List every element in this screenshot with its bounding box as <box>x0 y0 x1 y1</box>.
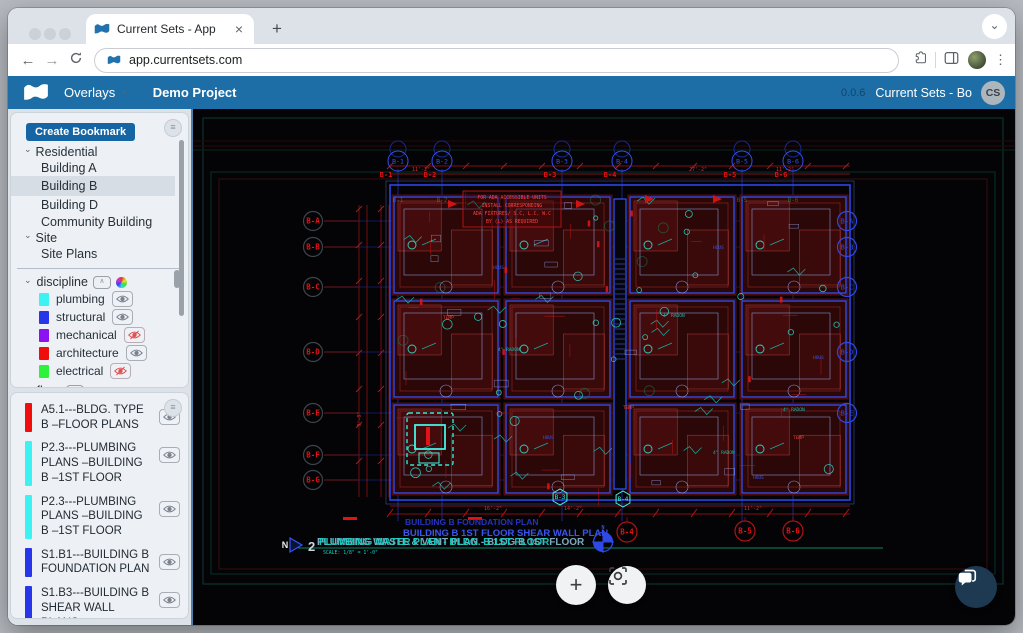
cad-text: B-A <box>841 218 854 226</box>
cad-text: B-C <box>841 284 854 292</box>
user-avatar[interactable]: CS <box>981 81 1005 105</box>
discipline-item-label: electrical <box>56 364 103 378</box>
visibility-eye-off-icon[interactable] <box>110 363 131 379</box>
cad-text: BUILDING B FOUNDATION PLAN <box>405 517 538 527</box>
browser-menu-kebab-icon[interactable]: ⋮ <box>994 52 1007 68</box>
sheet-row[interactable]: P2.3---PLUMBING PLANS –BUILDING B –1ST F… <box>25 441 180 485</box>
tree-label: Building D <box>41 198 98 212</box>
cad-text: B-4 <box>616 158 628 166</box>
sheet-color-bar <box>25 441 32 485</box>
visibility-eye-icon[interactable] <box>159 447 180 463</box>
scrollbar-thumb[interactable] <box>179 140 184 316</box>
cad-text: TEMP <box>443 315 454 321</box>
sidebar-item-community-building[interactable]: Community Building <box>11 213 188 230</box>
tab-search-chevron-icon[interactable]: ⌄ <box>982 14 1007 39</box>
discipline-header[interactable]: ⌄ discipline ∧ <box>11 274 188 290</box>
currentsets-favicon <box>94 23 110 35</box>
discipline-label: discipline <box>37 275 88 289</box>
chevron-down-icon: ⌄ <box>24 275 32 286</box>
cad-text: B-3 <box>544 171 557 179</box>
cad-text: B-E <box>306 409 320 418</box>
overlays-label: Overlays <box>64 85 115 100</box>
cad-text: BY (L) AS REQUIRED <box>486 219 538 225</box>
url-bar[interactable]: app.currentsets.com <box>94 48 899 73</box>
sheet-label: S1.B1---BUILDING B FOUNDATION PLAN <box>41 548 150 577</box>
sidebar-group-residential[interactable]: ⌄ Residential <box>11 144 188 159</box>
traffic-light-zoom-icon[interactable] <box>59 28 71 40</box>
discipline-item-plumbing[interactable]: plumbing <box>11 290 188 308</box>
discipline-item-structural[interactable]: structural <box>11 308 188 326</box>
cad-text: TEMP <box>623 405 634 411</box>
panel-handle-icon[interactable]: ≡ <box>164 119 182 137</box>
cad-text: B-6 <box>788 197 799 204</box>
tab-title: Current Sets - App <box>117 22 232 36</box>
discipline-item-mechanical[interactable]: mechanical <box>11 326 188 344</box>
cad-text: B-B <box>306 243 320 252</box>
cad-text: HOUS <box>813 355 824 361</box>
cad-text: B-D <box>841 349 854 357</box>
browser-window: Current Sets - App × + ⌄ ← → app.current… <box>8 8 1015 625</box>
browser-profile-avatar[interactable] <box>968 51 986 69</box>
tree-label: Residential <box>36 145 98 159</box>
currentsets-logo-icon[interactable] <box>22 83 50 102</box>
cad-text: B-E <box>841 410 854 418</box>
cad-text: B-1 <box>392 158 404 166</box>
color-swatch <box>39 311 49 324</box>
visibility-eye-icon[interactable] <box>159 592 180 608</box>
cad-text: B-A <box>306 217 320 226</box>
cad-text: B-D <box>306 348 320 357</box>
app-header: Overlays ⌄ Demo Project 0.0.6 Current Se… <box>8 76 1015 109</box>
url-text: app.currentsets.com <box>129 53 242 67</box>
cad-text: TEMP <box>793 435 804 441</box>
back-icon[interactable]: ← <box>16 52 40 69</box>
divider <box>17 268 182 269</box>
floor-label: floor <box>37 384 61 388</box>
cad-text: 11'-2" <box>744 506 762 512</box>
cad-text: B-5 <box>724 171 737 179</box>
add-button[interactable]: + <box>556 565 596 605</box>
sidebar-item-site-plans[interactable]: Site Plans <box>11 245 188 262</box>
sheet-row[interactable]: A5.1---BLDG. TYPE B –FLOOR PLANS <box>25 403 180 432</box>
center-focus-icon <box>608 566 628 586</box>
tree-label: Building A <box>41 161 97 175</box>
cad-text: B-4 <box>618 496 629 503</box>
discipline-item-label: architecture <box>56 346 119 360</box>
sheet-color-bar <box>25 586 32 619</box>
cad-text: HOUS <box>713 245 724 251</box>
cad-text: B-G <box>306 476 320 485</box>
visibility-eye-off-icon[interactable] <box>124 327 145 343</box>
sidebar-item-building-b[interactable]: Building B <box>11 176 175 196</box>
cad-text: HOUS <box>543 435 554 441</box>
color-swatch <box>39 365 49 378</box>
color-wheel-icon[interactable] <box>116 277 127 288</box>
chevron-down-icon: ⌄ <box>120 85 128 96</box>
cad-text: 4" RADON <box>783 407 805 413</box>
cad-text: 27'-2" <box>689 167 707 173</box>
visibility-eye-icon[interactable] <box>159 501 180 517</box>
cad-text: SCALE: 1/8" = 1'-0" <box>323 550 378 556</box>
project-name[interactable]: Demo Project <box>153 85 237 100</box>
sheet-label: S1.B3---BUILDING B SHEAR WALL PLANS <box>41 586 150 619</box>
currentsets-favicon <box>107 55 121 65</box>
cad-text: HOUS <box>753 475 764 481</box>
discipline-item-electrical[interactable]: electrical <box>11 362 188 380</box>
create-bookmark-button[interactable]: Create Bookmark <box>26 123 135 141</box>
cad-text: FOR ADA ACCESSIBLE UNITS <box>477 195 546 201</box>
sheet-color-bar <box>25 403 32 432</box>
cad-text: N <box>601 525 604 531</box>
cad-text: B-6 <box>787 158 799 166</box>
visibility-eye-icon[interactable] <box>126 345 147 361</box>
cad-text: B-5 <box>738 527 752 536</box>
sidebar: ≡ Create Bookmark ⌄ Residential Building… <box>8 109 193 625</box>
extensions-icon[interactable] <box>909 50 931 70</box>
chat-bubble-icon <box>955 566 979 590</box>
cad-text: B-3 <box>555 494 566 501</box>
cad-text: 4" RADON <box>663 313 685 319</box>
sheet-row[interactable]: S1.B3---BUILDING B SHEAR WALL PLANS <box>25 586 180 619</box>
sheet-row[interactable]: S1.B1---BUILDING B FOUNDATION PLAN <box>25 548 180 577</box>
cad-text: B-4 <box>620 528 634 537</box>
cad-text: 14'-2" <box>564 506 582 512</box>
cad-text: B-5 <box>736 158 748 166</box>
chevron-down-icon: ⌄ <box>24 144 32 155</box>
cad-text: B-4 <box>604 171 617 179</box>
color-swatch <box>39 347 49 360</box>
cad-text: B-5 <box>737 197 748 204</box>
cad-text: B-B <box>841 244 854 252</box>
sheet-label: A5.1---BLDG. TYPE B –FLOOR PLANS <box>41 403 150 432</box>
visibility-eye-icon[interactable] <box>112 291 133 307</box>
traffic-light-close-icon[interactable] <box>29 28 41 40</box>
tree-label: Site Plans <box>41 247 97 261</box>
tree-label: Site <box>36 231 58 245</box>
tab-close-icon[interactable]: × <box>232 21 246 37</box>
sidebar-item-building-a[interactable]: Building A <box>11 159 188 176</box>
cad-text: B-F <box>306 451 320 460</box>
sheet-label: P2.3---PLUMBING PLANS –BUILDING B –1ST F… <box>41 441 150 485</box>
traffic-light-minimize-icon[interactable] <box>44 28 56 40</box>
forward-icon[interactable]: → <box>40 52 64 69</box>
cad-text: 16'-2" <box>484 506 502 512</box>
cad-text: 4" RADON <box>713 450 735 456</box>
sheet-label: P2.3---PLUMBING PLANS –BUILDING B –1ST F… <box>41 495 150 539</box>
scan-focus-button[interactable] <box>608 566 646 604</box>
cad-text: B-2 <box>436 158 448 166</box>
chevron-down-icon: ⌄ <box>24 384 32 389</box>
panel-handle-icon[interactable]: ≡ <box>164 399 182 417</box>
side-panel-icon[interactable] <box>940 51 962 70</box>
sidebar-item-building-d[interactable]: Building D <box>11 196 188 213</box>
collapse-icon[interactable]: ∧ <box>66 385 84 389</box>
browser-toolbar: ← → app.currentsets.com ⋮ <box>8 44 1015 76</box>
bookmarks-panel: ≡ Create Bookmark ⌄ Residential Building… <box>10 112 189 388</box>
browser-tab[interactable]: Current Sets - App × <box>86 14 254 44</box>
sheets-panel: ≡ A5.1---BLDG. TYPE B –FLOOR PLANS P2.3-… <box>10 392 189 619</box>
discipline-item-label: plumbing <box>56 292 105 306</box>
cad-text: 11'-2" <box>412 167 430 173</box>
scrollbar-thumb[interactable] <box>174 270 180 288</box>
cad-text: B-3 <box>556 158 568 166</box>
cad-text: PLUMBING WATER PLAN - BLDG. B 1ST FLOOR <box>319 537 550 548</box>
collapse-icon[interactable]: ∧ <box>93 276 111 289</box>
visibility-eye-icon[interactable] <box>112 309 133 325</box>
tree-label: Community Building <box>41 215 152 229</box>
floor-header[interactable]: ⌄ floor ∧ <box>11 383 188 388</box>
cad-text: B-1 <box>393 197 404 204</box>
color-swatch <box>39 329 49 342</box>
cad-text: 4" RADON <box>498 347 520 353</box>
version-label: 0.0.6 <box>841 87 865 99</box>
cad-text: 9'-9" <box>357 411 363 426</box>
cad-text: HOUS <box>493 265 504 271</box>
visibility-eye-icon[interactable] <box>159 554 180 570</box>
cad-text: INSTALL CORRESPONDING <box>482 203 543 209</box>
account-name: Current Sets - Bo <box>875 86 972 100</box>
discipline-item-architecture[interactable]: architecture <box>11 344 188 362</box>
sheet-row[interactable]: P2.3---PLUMBING PLANS –BUILDING B –1ST F… <box>25 495 180 539</box>
cad-text: N <box>282 540 289 550</box>
sheet-color-bar <box>25 548 32 577</box>
cad-text: 2 <box>308 539 315 554</box>
reload-icon[interactable] <box>64 51 88 69</box>
color-swatch <box>39 293 49 306</box>
cad-text: B-1 <box>380 171 393 179</box>
sheet-color-bar <box>25 495 32 539</box>
tab-strip: Current Sets - App × + ⌄ <box>8 8 1015 44</box>
new-tab-button[interactable]: + <box>264 16 290 42</box>
overlays-menu[interactable]: Overlays ⌄ <box>64 85 129 100</box>
cad-text: B-6 <box>786 527 800 536</box>
chat-widget-button[interactable] <box>955 566 997 608</box>
tree-label: Building B <box>41 179 97 193</box>
cad-text: B-C <box>306 283 320 292</box>
cad-drawing[interactable]: B-1B-1B-1B-2B-2B-2B-3B-3B-4B-4B-5B-5B-5B… <box>193 109 1015 625</box>
cad-text: 11'-2" <box>776 167 794 173</box>
cad-text: B-2 <box>437 197 448 204</box>
toolbar-divider <box>935 52 936 68</box>
drawing-canvas[interactable]: B-1B-1B-1B-2B-2B-2B-3B-3B-4B-4B-5B-5B-5B… <box>193 109 1015 625</box>
discipline-item-label: mechanical <box>56 328 117 342</box>
chevron-down-icon: ⌄ <box>24 230 32 241</box>
cad-text: ADA FIXTURES/ S.C, L.C, W.C <box>473 211 551 217</box>
sidebar-group-site[interactable]: ⌄ Site <box>11 230 188 245</box>
discipline-item-label: structural <box>56 310 105 324</box>
